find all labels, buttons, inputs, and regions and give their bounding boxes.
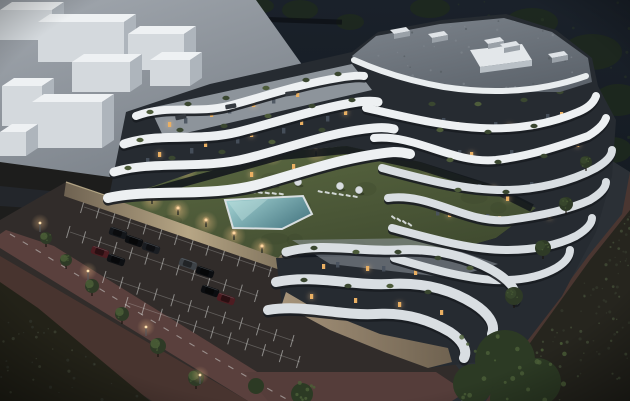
render-canvas xyxy=(0,0,630,401)
architectural-render xyxy=(0,0,630,401)
vignette xyxy=(0,0,630,401)
